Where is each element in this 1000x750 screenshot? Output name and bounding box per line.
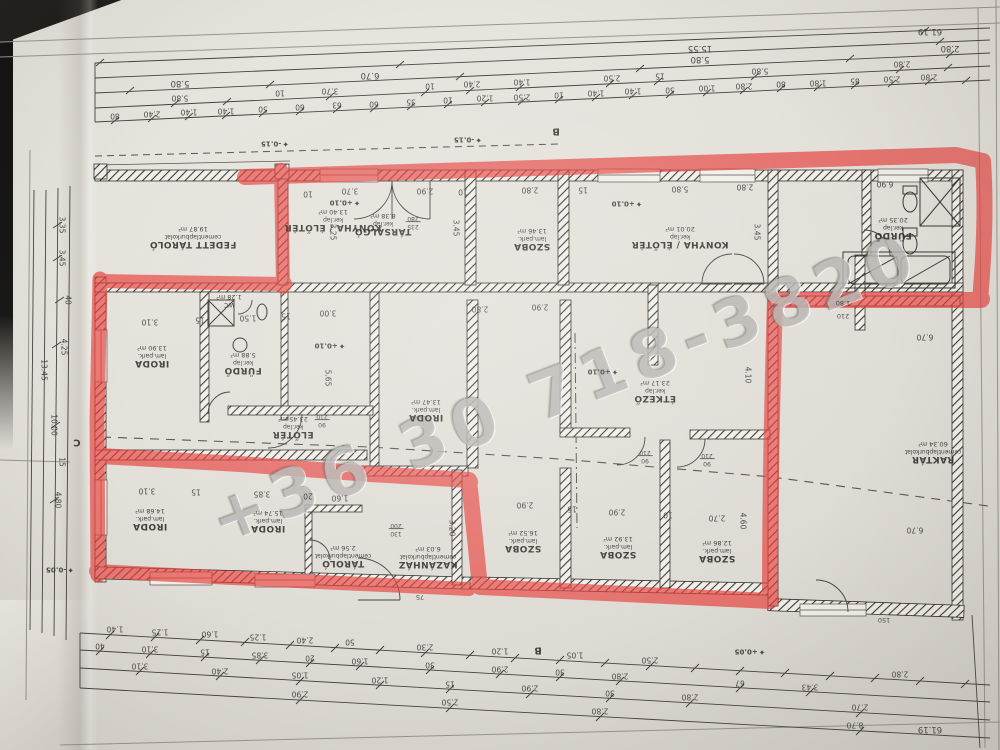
- level-marker: ✦+0.10: [612, 200, 643, 209]
- dim-label: 4.80: [54, 492, 63, 509]
- dim-label: 15: [578, 186, 588, 195]
- dim-label: 80: [110, 112, 120, 121]
- dim-label: 1.20: [492, 647, 509, 656]
- dim-label: 4.10: [744, 367, 753, 384]
- dim-label: 3.10: [132, 662, 149, 671]
- sink-icon: [233, 338, 247, 352]
- window-size-label: 235280: [405, 215, 420, 229]
- dim-label: 80: [776, 80, 786, 89]
- dim-label: 2.90: [292, 690, 309, 699]
- level-marker-icon: ✦: [612, 368, 619, 377]
- dim-label: 5.80: [691, 54, 710, 64]
- dim-label: 6.90: [877, 180, 894, 189]
- dim-label: 1.20: [477, 94, 494, 103]
- room-label-tarolo: TÁROLÓ cementlapburkolat 2.56 m²: [315, 544, 372, 568]
- section-marker-b-top: B: [552, 126, 560, 137]
- dim-label: 10: [303, 190, 313, 199]
- dim-label: 6.70: [361, 70, 380, 80]
- door-size-label: 90210: [637, 449, 652, 463]
- room-label-kazanhaz: KAZÁNHÁZ cementlapburkolat 6.03 m²: [398, 545, 457, 569]
- dim-label: 15.55: [688, 43, 712, 53]
- dim-label: 3.85: [252, 651, 269, 660]
- dim-label: 15: [567, 505, 577, 514]
- dim-label: 10: [443, 96, 453, 105]
- dim-label: 2.90: [517, 501, 534, 510]
- dim-label: 1.20: [372, 676, 389, 685]
- section-marker-c-left: C: [73, 437, 80, 448]
- dim-label: 2.80: [737, 183, 754, 192]
- dim-label: 10: [275, 89, 285, 98]
- dim-label: 2.50: [884, 75, 901, 84]
- dim-label: 1.05: [567, 651, 584, 660]
- dim-label: 30: [605, 689, 615, 698]
- dim-label: 5.80: [752, 67, 769, 76]
- dim-label: 4.60: [739, 513, 748, 530]
- dim-label: 5.80: [672, 185, 689, 194]
- dim-label: 1.40: [588, 89, 605, 98]
- level-marker: ✦+0.05: [735, 648, 766, 657]
- dim-label: 61.19: [918, 26, 942, 36]
- dim-label: 3.10: [142, 318, 159, 327]
- dim-label: 2.80: [941, 43, 960, 53]
- dim-label: 5.65: [324, 370, 333, 387]
- dim-label: 3.70: [342, 187, 359, 196]
- dim-label: 2.90: [492, 665, 509, 674]
- dim-label: 50: [258, 105, 268, 114]
- room-label-szoba-b2: SZOBA lam.park. 13.92 m²: [600, 535, 636, 559]
- dim-label: 2.80: [682, 693, 699, 702]
- room-label-szoba-top: SZOBA lam.park. 13.46 m²: [514, 227, 550, 251]
- level-marker: ✦+0.10: [330, 199, 361, 208]
- dim-label: 63: [332, 101, 342, 110]
- door-size-label: 210: [837, 312, 849, 320]
- dim-label: 13.45: [40, 359, 49, 380]
- level-marker: ✦-0.15: [454, 136, 482, 145]
- dim-label: 2.50: [604, 74, 621, 83]
- dim-label: 30: [425, 661, 435, 670]
- dim-label: 5.80: [172, 94, 189, 103]
- level-marker: ✦+0.10: [315, 342, 346, 351]
- level-marker: ✦-0.15: [261, 140, 289, 149]
- room-label-wc: WC 1.28 m²: [216, 293, 241, 307]
- dim-label: 10: [458, 188, 468, 197]
- dim-label: 1.60: [332, 494, 349, 503]
- dim-label: 10.00: [50, 414, 59, 435]
- dim-label: 15: [195, 316, 205, 325]
- dim-label: 1.60: [352, 657, 369, 666]
- dim-label: 10: [554, 91, 564, 100]
- dim-label: 20: [305, 654, 315, 663]
- dim-label: 3.70: [322, 87, 339, 96]
- room-label-tarsalgo: TÁRSALGÓ ker.lap 8.38 m²: [355, 212, 412, 236]
- dim-label: 15: [445, 680, 455, 689]
- dim-label: 1.00: [699, 84, 716, 93]
- room-label-etkezo: ÉTKEZŐ ker.lap 23.17 m²: [634, 379, 676, 403]
- red-marker-outline: [97, 279, 100, 575]
- door-size-label: 130200: [388, 522, 403, 536]
- dim-label: 60: [295, 103, 305, 112]
- dim-label: 3.10: [142, 645, 159, 654]
- dim-label: 3.10: [139, 487, 156, 496]
- door-size-label: 150: [878, 616, 890, 624]
- dim-label: 15: [191, 488, 201, 497]
- dim-label: 2.40: [144, 110, 161, 119]
- dim-label: 3.35: [58, 217, 67, 234]
- dim-label: 50: [665, 86, 675, 95]
- dim-label: 2.50: [442, 698, 459, 707]
- room-label-raktar: RAKTÁR cementlapburkolat 60.34 m²: [905, 440, 962, 464]
- dim-label: 2.80: [472, 305, 489, 314]
- dim-label: 2.80: [612, 672, 629, 681]
- dim-label: 1.60: [202, 630, 219, 639]
- dim-label: 15: [281, 312, 291, 321]
- dim-label: 30: [555, 668, 565, 677]
- door-size-label: 75: [416, 593, 424, 601]
- dim-label: 2.40: [212, 667, 229, 676]
- dim-label: 2.40: [464, 80, 481, 89]
- dim-label: 2.90: [609, 508, 626, 517]
- room-label-furdo-mid: FÜRDŐ ker.lap 5.88 m²: [224, 351, 262, 375]
- dim-label: 1.50: [240, 314, 257, 323]
- dim-label: 1.40: [181, 108, 198, 117]
- dim-label: 2.40: [297, 636, 314, 645]
- dim-label: 15: [200, 648, 210, 657]
- door-size-label: 90210: [699, 452, 714, 466]
- dim-label: 3.45: [753, 224, 762, 241]
- dim-label: 15: [58, 457, 67, 467]
- dim-label: 2.90: [532, 303, 549, 312]
- dim-label: 1.40: [514, 78, 531, 87]
- dim-label: 6.70: [907, 526, 924, 535]
- dim-label: 1.25: [250, 633, 267, 642]
- room-label-iroda-center: IRODA lam.park. 13.47 m²: [409, 398, 443, 422]
- dim-label: 10: [663, 511, 673, 520]
- dim-label: 2.90: [522, 684, 539, 693]
- dim-label: 1.40: [107, 625, 124, 634]
- dim-label: 6.70: [917, 333, 934, 342]
- dim-label: 2.70: [852, 703, 869, 712]
- level-marker: ✦-0.05: [46, 566, 74, 575]
- level-marker-icon: ✦: [475, 136, 482, 145]
- red-marker-outline: [96, 571, 469, 589]
- dim-label: 3.45: [452, 220, 461, 237]
- section-marker-b-bottom: B: [534, 645, 542, 656]
- dim-label: 2.90: [417, 187, 434, 196]
- dim-label: 3.25: [329, 224, 338, 241]
- dim-label: 2.50: [514, 93, 531, 102]
- room-label-szoba-b3: SZOBA lam.park. 12.86 m²: [699, 539, 735, 563]
- dim-label: 5.80: [171, 78, 190, 88]
- level-marker-icon: ✦: [636, 200, 643, 209]
- level-marker-icon: ✦: [282, 140, 289, 149]
- dim-label: 1.25: [152, 628, 169, 637]
- dim-label: 3.00: [320, 309, 337, 318]
- dim-label: 2.80: [736, 82, 753, 91]
- dim-label: 35: [406, 98, 416, 107]
- level-marker-icon: ✦: [759, 648, 766, 657]
- dim-label: 8.70: [847, 721, 864, 730]
- dim-label: 3.20: [448, 520, 457, 537]
- toilet-icon: [257, 304, 267, 320]
- dim-label: 2.80: [921, 73, 938, 82]
- dim-label: 2.80: [894, 60, 911, 69]
- dim-label: 40: [64, 295, 73, 305]
- dim-label: 2.50: [642, 656, 659, 665]
- dim-label: 40: [95, 642, 105, 651]
- dim-label: 60: [369, 100, 379, 109]
- dim-label: 3.85: [254, 490, 271, 499]
- dim-label: 3.43: [802, 683, 819, 692]
- room-label-iroda-bottom2: IRODA lam.park. 15.74 m²: [251, 509, 285, 533]
- dim-label: 20: [303, 492, 313, 501]
- dim-label: 50: [345, 638, 355, 647]
- dim-label: 1.40: [218, 107, 235, 116]
- dim-label: 15: [655, 72, 665, 81]
- dim-label: 67: [735, 679, 745, 688]
- dim-label: 10: [425, 82, 435, 91]
- room-label-iroda-midleft: IRODA lam.park. 13.90 m²: [135, 344, 169, 368]
- dim-label: 1.80: [810, 79, 827, 88]
- dim-label: 1.80: [836, 299, 850, 307]
- room-label-szoba-b1: SZOBA lam.park. 16.52 m²: [505, 529, 541, 553]
- toilet-icon: [903, 192, 917, 212]
- floorplan-photo: +36 30 718-3820 FEDETT TÁROLÓ cementlapb…: [0, 0, 1000, 750]
- level-marker-icon: ✦: [354, 199, 361, 208]
- room-label-iroda-bottom1: IRODA lam.park. 14.68 m²: [133, 507, 167, 531]
- dim-label: 2.80: [522, 186, 539, 195]
- level-marker-icon: ✦: [339, 342, 346, 351]
- room-label-furdo-topright: FÜRDŐ ker.lap 20.35 m²: [874, 216, 912, 240]
- dim-label: 4.25: [60, 339, 69, 356]
- dim-label: 1.40: [625, 87, 642, 96]
- level-marker: ✦+0.10: [588, 368, 619, 377]
- dim-label: 2.70: [709, 514, 726, 523]
- dim-label: 85: [850, 77, 860, 86]
- dim-label: 2.80: [592, 707, 609, 716]
- dim-label: 2.80: [892, 670, 909, 679]
- dim-label: 2.30: [417, 643, 434, 652]
- level-marker-icon: ✦: [67, 566, 74, 575]
- dim-label: 3.45: [58, 250, 67, 267]
- room-label-konyha-eloter-right: KONYHA / ÉLŐTÉR ker.lap 20.01 m²: [631, 225, 728, 249]
- room-label-fedett-tarolo: FEDETT TÁROLÓ cementlapburkolat 19.87 m²: [150, 225, 237, 249]
- dim-label: 1.05: [292, 671, 309, 680]
- dim-label: 61.19: [918, 724, 942, 734]
- room-label-eloter: ELŐTÉR ker.lap 23.45 m²: [272, 415, 313, 439]
- door-size-label: 90210: [314, 413, 329, 427]
